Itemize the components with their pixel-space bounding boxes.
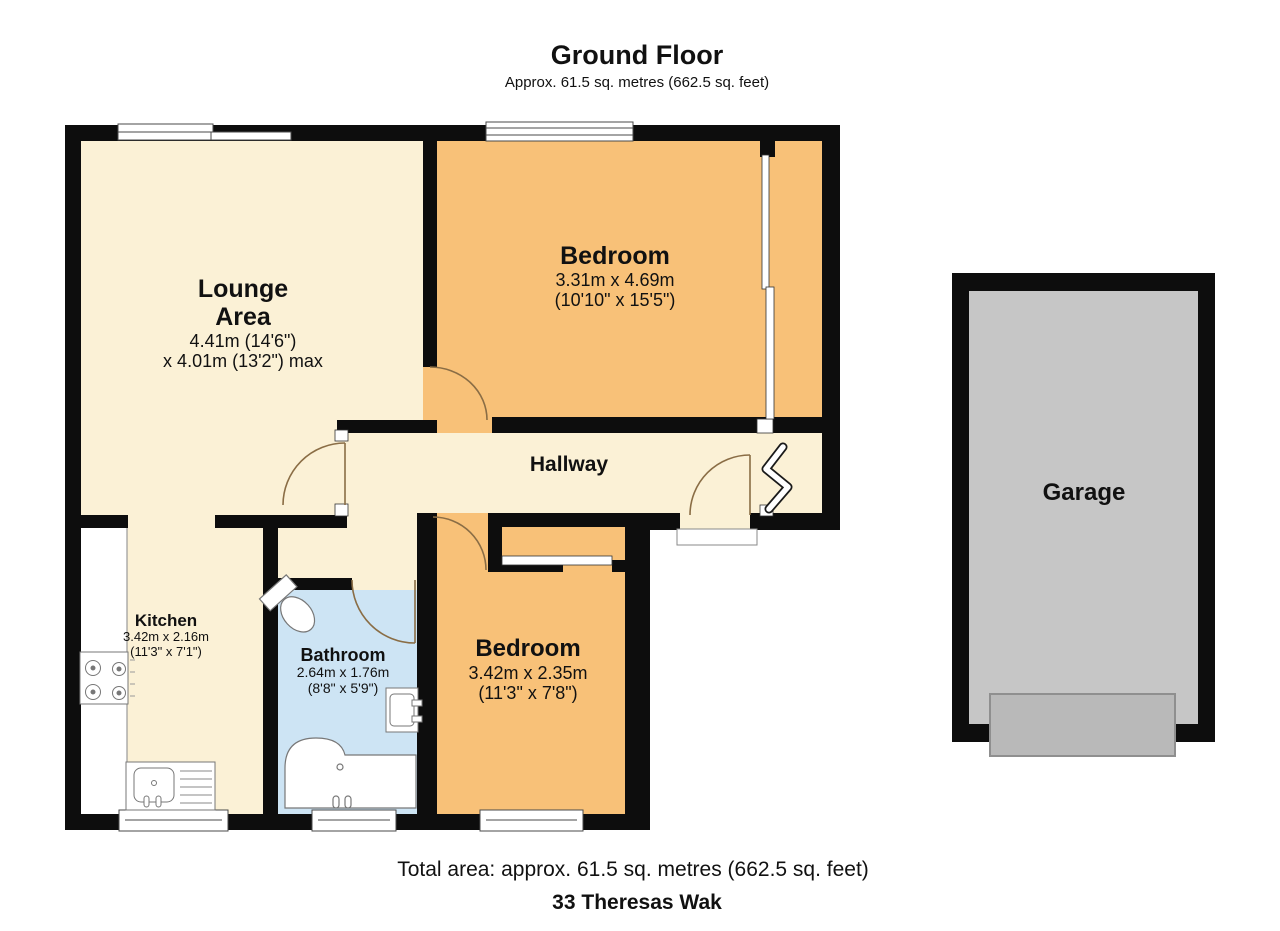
wall <box>822 125 840 530</box>
bathroom-dim2: (8'8" x 5'9") <box>297 681 390 697</box>
bathroom-label: Bathroom 2.64m x 1.76m (8'8" x 5'9") <box>297 645 390 697</box>
bedroom1-window <box>486 122 633 141</box>
bedroom2-dim1: 3.42m x 2.35m <box>468 663 587 683</box>
garage-room-fill <box>969 291 1198 724</box>
washbasin-icon <box>386 688 422 732</box>
wall <box>263 515 278 815</box>
lounge-dim1: 4.41m (14'6") <box>163 331 323 351</box>
front-door-step <box>677 529 757 545</box>
address-text: 33 Theresas Wak <box>552 891 722 915</box>
bedroom2-label: Bedroom 3.42m x 2.35m (11'3" x 7'8") <box>468 636 587 703</box>
lounge-label: Lounge Area 4.41m (14'6") x 4.01m (13'2"… <box>163 275 323 371</box>
wall <box>760 140 775 157</box>
bedroom1-name: Bedroom <box>555 242 676 270</box>
lounge-name2: Area <box>163 303 323 331</box>
bedroom1-dim2: (10'10" x 15'5") <box>555 290 676 310</box>
wall <box>423 140 437 367</box>
kitchen-label: Kitchen 3.42m x 2.16m (11'3" x 7'1") <box>123 611 209 659</box>
garage-label: Garage <box>1043 480 1126 507</box>
bedroom1-wardrobe-slider <box>766 287 774 419</box>
hallway-label: Hallway <box>530 453 608 477</box>
total-area-text: Total area: approx. 61.5 sq. metres (662… <box>397 858 869 882</box>
door-jamb <box>335 504 348 516</box>
page-title: Ground Floor <box>551 40 723 70</box>
lounge-dim2: x 4.01m (13'2") max <box>163 351 323 371</box>
bathroom-dim1: 2.64m x 1.76m <box>297 665 390 681</box>
bedroom1-label: Bedroom 3.31m x 4.69m (10'10" x 15'5") <box>555 242 676 310</box>
wall <box>80 515 128 528</box>
bedroom2-wardrobe-slider <box>502 556 612 565</box>
door-jamb <box>757 419 773 433</box>
garage-wall <box>952 273 1215 291</box>
wall <box>337 420 437 433</box>
wall <box>488 513 625 527</box>
lounge-window-sill <box>211 132 291 140</box>
wall <box>65 125 81 830</box>
bedroom1-wardrobe-slider <box>762 155 769 289</box>
hob-icon <box>80 652 135 704</box>
page-subtitle: Approx. 61.5 sq. metres (662.5 sq. feet) <box>505 75 769 92</box>
wall <box>417 513 437 815</box>
bathroom-name: Bathroom <box>297 645 390 665</box>
wall <box>650 513 680 530</box>
wall <box>215 515 347 528</box>
garage-wall <box>952 273 969 742</box>
floor-plan-drawing <box>0 0 1280 931</box>
kitchen-name: Kitchen <box>123 611 209 630</box>
wall <box>625 513 650 830</box>
kitchen-sink-icon <box>126 762 215 810</box>
garage-wall <box>1198 273 1215 742</box>
front-door-opening <box>680 513 750 530</box>
kitchen-dim2: (11'3" x 7'1") <box>123 645 209 660</box>
bedroom1-dim1: 3.31m x 4.69m <box>555 270 676 290</box>
floor-plan-canvas: Ground Floor Approx. 61.5 sq. metres (66… <box>0 0 1280 931</box>
lounge-name: Lounge <box>163 275 323 303</box>
door-jamb <box>335 430 348 441</box>
wall <box>612 560 625 572</box>
bedroom2-dim2: (11'3" x 7'8") <box>468 683 587 703</box>
bedroom2-name: Bedroom <box>468 636 587 663</box>
kitchen-dim1: 3.42m x 2.16m <box>123 630 209 645</box>
garage-door <box>990 694 1175 756</box>
